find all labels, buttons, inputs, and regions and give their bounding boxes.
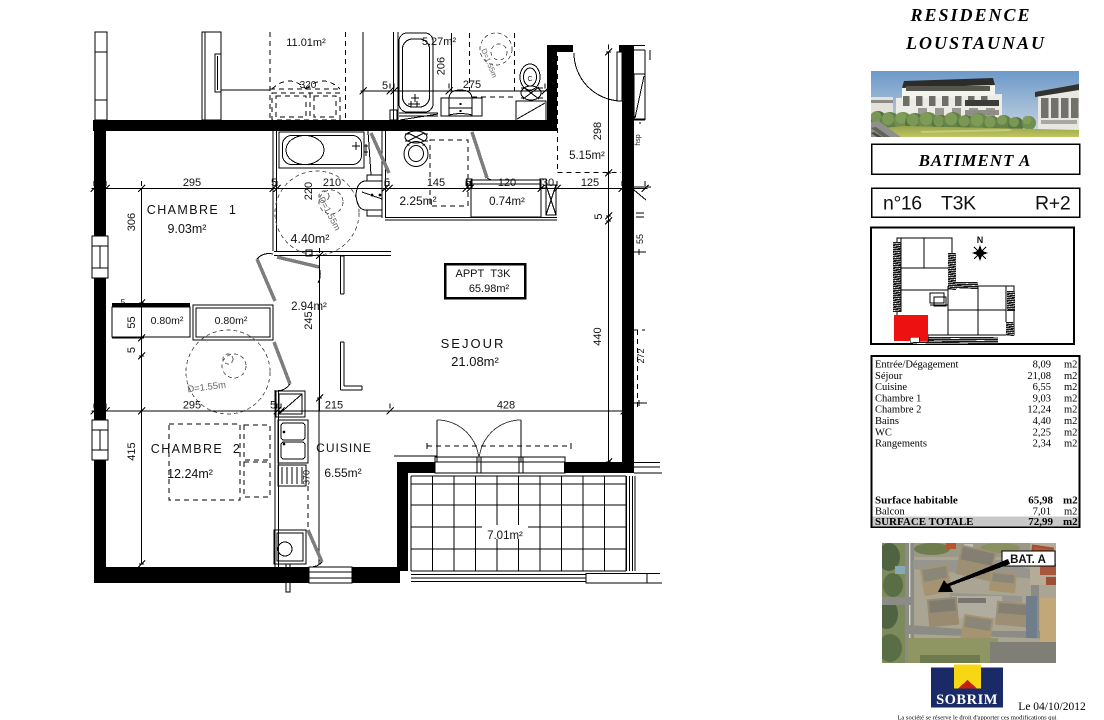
svg-text:5: 5 (270, 400, 276, 412)
svg-text:R+2: R+2 (1035, 193, 1070, 215)
svg-text:275: 275 (463, 79, 481, 91)
svg-text:55: 55 (635, 234, 645, 244)
svg-text:30: 30 (542, 177, 554, 189)
svg-text:4.40m²: 4.40m² (291, 232, 330, 246)
svg-text:SURFACE TOTALE: SURFACE TOTALE (875, 516, 974, 528)
svg-text:6.55m²: 6.55m² (324, 466, 361, 480)
svg-text:5: 5 (126, 347, 138, 353)
svg-text:Le 04/10/2012: Le 04/10/2012 (1018, 701, 1086, 713)
svg-text:21.08m²: 21.08m² (451, 354, 499, 369)
svg-text:m2: m2 (1064, 427, 1077, 438)
svg-text:D=1.55m: D=1.55m (479, 47, 499, 79)
svg-text:428: 428 (497, 400, 515, 412)
svg-text:CHAMBRE 1: CHAMBRE 1 (147, 203, 237, 217)
svg-text:m2: m2 (1064, 382, 1077, 393)
svg-text:m2: m2 (1064, 439, 1077, 450)
svg-text:9,03: 9,03 (1033, 393, 1051, 404)
svg-text:65,98: 65,98 (1028, 495, 1053, 507)
svg-text:Rangements: Rangements (875, 439, 927, 450)
svg-text:0.80m²: 0.80m² (215, 315, 248, 327)
svg-text:2,34: 2,34 (1033, 439, 1052, 450)
svg-text:125: 125 (581, 177, 599, 189)
svg-text:2.25m²: 2.25m² (399, 194, 436, 208)
svg-text:Bains: Bains (875, 416, 899, 427)
svg-text:hsp: hsp (635, 134, 642, 145)
svg-text:n°16: n°16 (883, 193, 922, 215)
svg-text:5: 5 (465, 177, 471, 189)
svg-text:12,24: 12,24 (1027, 405, 1051, 416)
svg-text:5: 5 (384, 177, 390, 189)
svg-text:120: 120 (498, 177, 516, 189)
svg-text:306: 306 (126, 213, 138, 231)
svg-text:272: 272 (636, 348, 646, 363)
svg-text:440: 440 (592, 327, 604, 345)
svg-text:C: C (527, 76, 532, 83)
svg-text:215: 215 (325, 400, 343, 412)
svg-text:Cuisine: Cuisine (875, 382, 907, 393)
svg-text:m2: m2 (1064, 393, 1077, 404)
svg-text:72,99: 72,99 (1028, 516, 1053, 528)
svg-text:9.03m²: 9.03m² (168, 222, 207, 236)
svg-text:WC: WC (875, 427, 892, 438)
svg-text:206: 206 (436, 57, 448, 75)
svg-text:6,55: 6,55 (1033, 382, 1051, 393)
svg-text:Entrée/Dégagement: Entrée/Dégagement (875, 360, 958, 371)
svg-text:55: 55 (126, 316, 138, 328)
svg-text:0.74m²: 0.74m² (489, 196, 525, 208)
svg-text:T3K: T3K (941, 193, 976, 215)
svg-text:210: 210 (323, 177, 341, 189)
svg-text:12.24m²: 12.24m² (167, 467, 213, 481)
svg-text:295: 295 (183, 177, 201, 189)
svg-text:RESIDENCE: RESIDENCE (909, 5, 1031, 25)
svg-text:415: 415 (126, 442, 138, 460)
svg-text:m2: m2 (1063, 495, 1078, 507)
svg-text:370: 370 (302, 470, 312, 485)
svg-text:5: 5 (271, 177, 277, 189)
svg-text:220: 220 (303, 182, 315, 200)
svg-text:Chambre 2: Chambre 2 (875, 405, 921, 416)
svg-text:245: 245 (303, 311, 315, 329)
svg-text:APPT T3K: APPT T3K (455, 268, 511, 280)
svg-text:BAT. A: BAT. A (1010, 554, 1046, 566)
svg-text:5.15m²: 5.15m² (569, 150, 605, 162)
svg-text:2.94m²: 2.94m² (291, 301, 327, 313)
svg-text:4,40: 4,40 (1033, 416, 1051, 427)
svg-text:21,08: 21,08 (1027, 371, 1051, 382)
svg-text:CUISINE: CUISINE (316, 441, 372, 455)
svg-text:Séjour: Séjour (875, 371, 903, 382)
svg-text:5: 5 (121, 298, 126, 307)
svg-text:Surface habitable: Surface habitable (875, 495, 958, 507)
svg-text:295: 295 (183, 400, 201, 412)
svg-text:BATIMENT A: BATIMENT A (918, 151, 1032, 170)
svg-text:65.98m²: 65.98m² (469, 283, 510, 295)
svg-text:8,09: 8,09 (1033, 360, 1051, 371)
svg-text:320: 320 (300, 80, 317, 91)
svg-text:La société se réserve le droit: La société se réserve le droit d'apporte… (897, 715, 1056, 720)
svg-text:5: 5 (382, 80, 388, 92)
svg-text:145: 145 (427, 177, 445, 189)
svg-text:D=1.55m: D=1.55m (187, 380, 227, 396)
svg-text:298: 298 (592, 122, 604, 140)
svg-text:2,25: 2,25 (1033, 427, 1051, 438)
svg-text:11.01m²: 11.01m² (286, 37, 326, 49)
svg-text:D=1.55m: D=1.55m (317, 195, 343, 232)
svg-text:m2: m2 (1063, 516, 1078, 528)
svg-text:SOBRIM: SOBRIM (936, 692, 998, 708)
svg-text:CHAMBRE 2: CHAMBRE 2 (151, 442, 241, 456)
svg-text:0.80m²: 0.80m² (151, 315, 184, 327)
svg-text:Chambre 1: Chambre 1 (875, 393, 921, 404)
svg-text:5: 5 (593, 213, 605, 219)
svg-text:m2: m2 (1064, 360, 1077, 371)
svg-text:LOUSTAUNAU: LOUSTAUNAU (905, 33, 1046, 53)
svg-text:SEJOUR: SEJOUR (441, 336, 506, 351)
svg-text:m2: m2 (1064, 416, 1077, 427)
svg-text:m2: m2 (1064, 371, 1077, 382)
svg-text:N: N (977, 235, 984, 245)
svg-text:m2: m2 (1064, 405, 1077, 416)
svg-text:7.01m²: 7.01m² (487, 530, 523, 542)
